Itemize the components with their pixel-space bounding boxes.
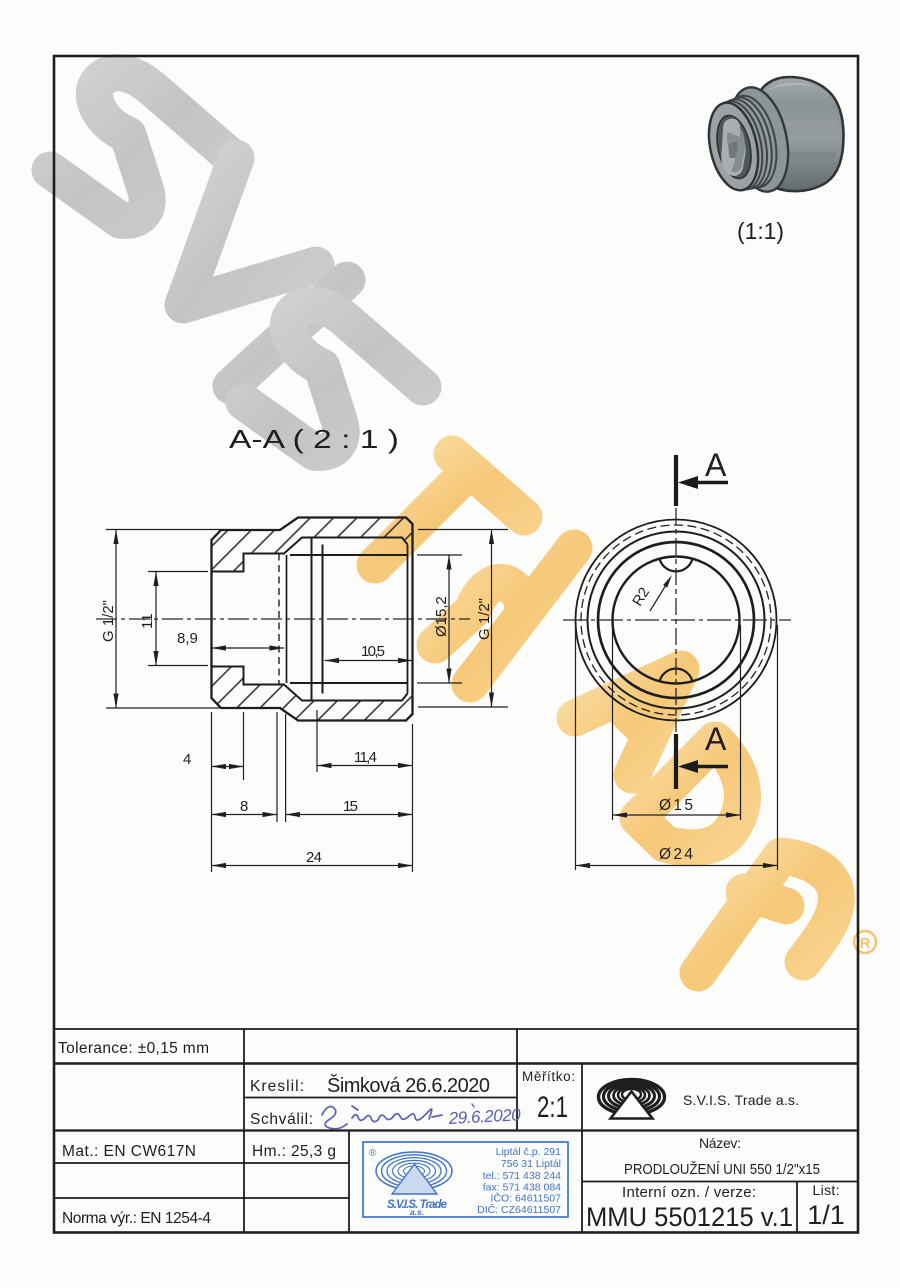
svg-text:Ø24: Ø24 bbox=[659, 846, 693, 863]
svg-text:a.s.: a.s. bbox=[410, 1207, 424, 1217]
svg-text:Schválil:: Schválil: bbox=[250, 1111, 313, 1128]
svg-text:11,4: 11,4 bbox=[354, 749, 377, 766]
svg-text:PRODLOUŽENÍ UNI 550 1/2"x15: PRODLOUŽENÍ UNI 550 1/2"x15 bbox=[624, 1161, 820, 1178]
svg-text:4: 4 bbox=[183, 751, 191, 768]
svg-text:Název:: Název: bbox=[699, 1135, 741, 1151]
svg-text:8: 8 bbox=[240, 798, 248, 815]
svg-text:®: ® bbox=[369, 1148, 377, 1159]
svg-text:1/1: 1/1 bbox=[807, 1200, 845, 1230]
svg-text:24: 24 bbox=[306, 849, 322, 866]
svg-text:R: R bbox=[860, 935, 871, 952]
svg-text:10,5: 10,5 bbox=[361, 643, 385, 660]
svg-text:tel.: 571 438 244: tel.: 571 438 244 bbox=[483, 1170, 561, 1182]
svg-text:S.V.I.S. Trade a.s.: S.V.I.S. Trade a.s. bbox=[683, 1092, 799, 1108]
svg-text:A-A ( 2 : 1 ): A-A ( 2 : 1 ) bbox=[229, 424, 399, 454]
svg-text:List:: List: bbox=[813, 1182, 840, 1198]
svg-text:Mat.: EN CW617N: Mat.: EN CW617N bbox=[62, 1143, 196, 1160]
svg-text:8,9: 8,9 bbox=[177, 630, 198, 647]
svg-text:Ø15,2: Ø15,2 bbox=[433, 596, 450, 637]
svg-text:Interní ozn. / verze:: Interní ozn. / verze: bbox=[622, 1184, 756, 1201]
svg-text:2:1: 2:1 bbox=[537, 1091, 568, 1124]
svg-text:Kreslil:: Kreslil: bbox=[250, 1078, 304, 1095]
svg-text:15: 15 bbox=[343, 798, 358, 815]
svg-text:11: 11 bbox=[139, 613, 156, 629]
svg-text:A: A bbox=[705, 447, 727, 483]
svg-text:29.6.2020: 29.6.2020 bbox=[447, 1105, 521, 1128]
svg-text:Hm.: 25,3 g: Hm.: 25,3 g bbox=[252, 1143, 336, 1160]
svg-text:(1:1): (1:1) bbox=[737, 218, 784, 244]
svg-text:Ø15: Ø15 bbox=[659, 797, 693, 814]
svg-text:MMU 5501215 v.1: MMU 5501215 v.1 bbox=[586, 1202, 793, 1232]
svg-text:G 1/2": G 1/2" bbox=[476, 598, 493, 640]
svg-text:Norma výr.: EN 1254-4: Norma výr.: EN 1254-4 bbox=[62, 1210, 211, 1227]
svg-text:IČO: 64611507: IČO: 64611507 bbox=[491, 1192, 562, 1205]
svg-text:DIČ: CZ64611507: DIČ: CZ64611507 bbox=[477, 1203, 561, 1216]
svg-text:Tolerance: ±0,15 mm: Tolerance: ±0,15 mm bbox=[58, 1040, 209, 1057]
svg-text:756 31 Liptál: 756 31 Liptál bbox=[501, 1158, 561, 1170]
svg-text:G 1/2": G 1/2" bbox=[100, 600, 117, 642]
svg-text:Šimková 26.6.2020: Šimková 26.6.2020 bbox=[327, 1074, 490, 1097]
svg-text:Měřítko:: Měřítko: bbox=[522, 1069, 575, 1084]
svg-text:A: A bbox=[705, 721, 727, 757]
svg-text:Liptál č.p. 291: Liptál č.p. 291 bbox=[496, 1146, 562, 1158]
